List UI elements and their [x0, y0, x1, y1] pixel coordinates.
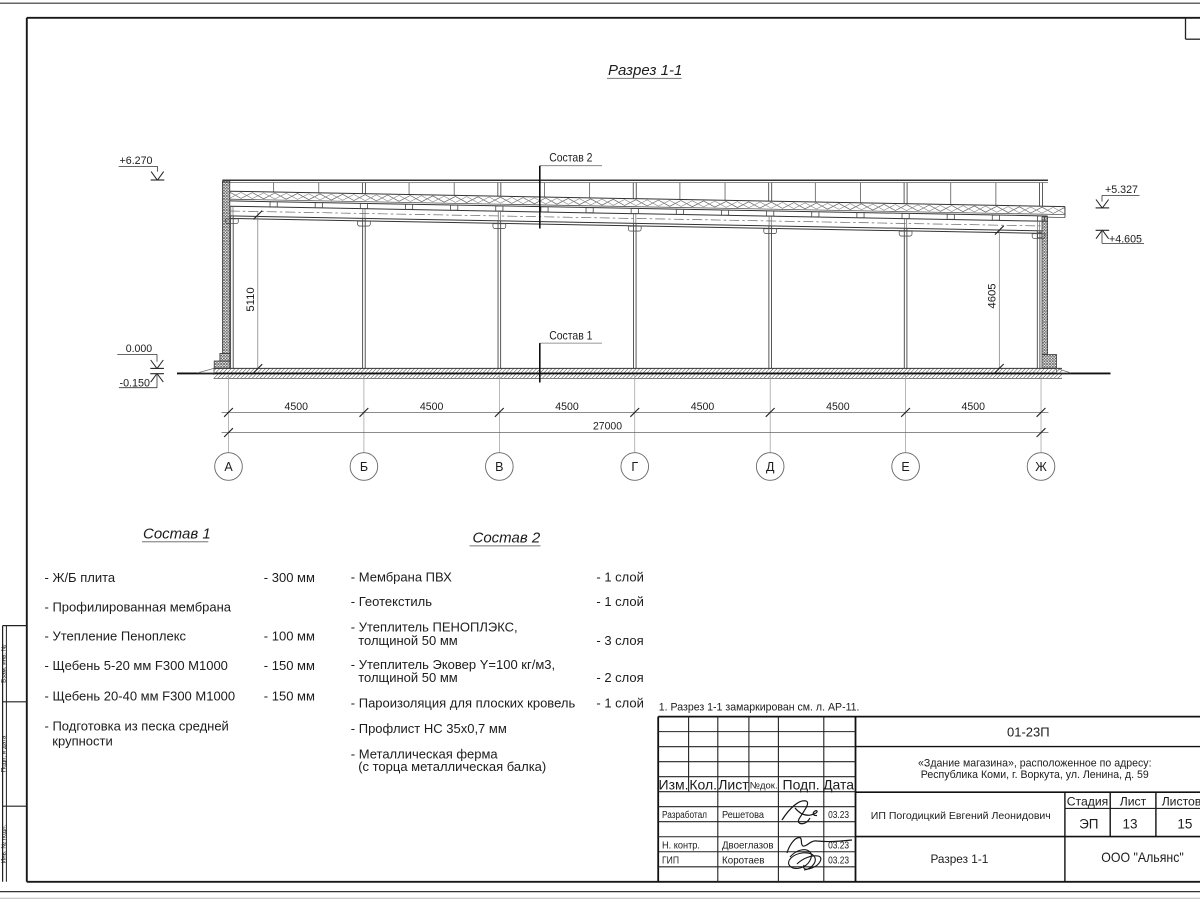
svg-text:- Мембрана ПВХ: - Мембрана ПВХ [351, 570, 452, 585]
svg-text:Состав 1: Состав 1 [549, 329, 592, 342]
svg-text:Двоеглазов: Двоеглазов [722, 840, 774, 852]
svg-text:толщиной 50 мм: толщиной 50 мм [358, 633, 458, 648]
svg-text:Г: Г [631, 460, 638, 474]
svg-text:Состав 2: Состав 2 [473, 530, 541, 547]
svg-text:Изм.: Изм. [659, 776, 689, 792]
svg-text:- Ж/Б плита: - Ж/Б плита [45, 570, 116, 585]
svg-text:- Щебень 20-40 мм F300 М1000: - Щебень 20-40 мм F300 М1000 [45, 689, 236, 704]
svg-text:4500: 4500 [420, 401, 444, 413]
svg-text:5110: 5110 [245, 287, 257, 311]
svg-text:Б: Б [360, 460, 368, 474]
svg-text:ООО "Альянс": ООО "Альянс" [1101, 849, 1184, 865]
svg-text:Дата: Дата [823, 776, 854, 792]
svg-text:- Щебень 5-20 мм F300 М1000: - Щебень 5-20 мм F300 М1000 [45, 658, 228, 673]
svg-text:01-23П: 01-23П [1007, 725, 1050, 740]
svg-text:ЭП: ЭП [1079, 816, 1098, 831]
svg-text:+5.327: +5.327 [1105, 184, 1138, 196]
svg-text:крупности: крупности [52, 734, 112, 749]
svg-text:-0.150: -0.150 [120, 378, 151, 390]
svg-text:Взам. инв. №: Взам. инв. № [0, 644, 7, 683]
svg-text:+4.605: +4.605 [1109, 234, 1142, 246]
svg-text:Листов: Листов [1162, 795, 1200, 809]
svg-text:- 300 мм: - 300 мм [264, 570, 315, 585]
svg-text:№док.: №док. [750, 781, 778, 792]
svg-text:4500: 4500 [962, 401, 986, 413]
svg-text:«Здание магазина», расположенн: «Здание магазина», расположенное по адре… [918, 758, 1152, 770]
svg-text:- 1 слой: - 1 слой [596, 570, 644, 585]
svg-text:Коротаев: Коротаев [722, 855, 765, 867]
svg-text:В: В [495, 460, 503, 474]
svg-text:1. Разрез 1-1 замаркирован см.: 1. Разрез 1-1 замаркирован см. л. АР-11. [659, 702, 860, 714]
svg-text:03.23: 03.23 [828, 856, 849, 867]
svg-text:ИП Погодицкий Евгений Леонидов: ИП Погодицкий Евгений Леонидович [871, 810, 1051, 822]
svg-text:4500: 4500 [284, 401, 308, 413]
svg-text:- 1 слой: - 1 слой [596, 695, 644, 710]
svg-text:- 100 мм: - 100 мм [264, 629, 315, 644]
svg-text:Н. контр.: Н. контр. [662, 841, 700, 852]
svg-text:Стадия: Стадия [1067, 795, 1109, 809]
svg-text:Подп. и дата: Подп. и дата [0, 735, 7, 772]
svg-text:15: 15 [1177, 816, 1192, 831]
svg-text:- Утепление Пеноплекс: - Утепление Пеноплекс [45, 629, 187, 644]
svg-text:- 3 слоя: - 3 слоя [596, 633, 643, 648]
svg-text:Е: Е [901, 460, 909, 474]
svg-text:Инв. № подл.: Инв. № подл. [0, 824, 7, 863]
svg-text:Разработал: Разработал [662, 809, 707, 821]
svg-text:- 150 мм: - 150 мм [264, 658, 315, 673]
svg-text:Лист: Лист [1120, 795, 1147, 809]
svg-text:- Профлист НС 35х0,7 мм: - Профлист НС 35х0,7 мм [351, 721, 507, 736]
svg-text:- 1 слой: - 1 слой [596, 594, 644, 609]
svg-text:4605: 4605 [986, 283, 998, 308]
svg-text:- Пароизоляция для плоских кро: - Пароизоляция для плоских кровель [351, 695, 576, 710]
svg-text:толщиной 50 мм: толщиной 50 мм [358, 670, 458, 685]
svg-text:- 2 слоя: - 2 слоя [596, 670, 643, 685]
svg-text:Подп.: Подп. [783, 776, 820, 792]
svg-text:Разрез 1-1: Разрез 1-1 [608, 62, 682, 79]
svg-text:0.000: 0.000 [126, 343, 153, 355]
svg-text:13: 13 [1122, 816, 1137, 831]
svg-text:+6.270: +6.270 [120, 155, 153, 167]
svg-text:Д: Д [766, 460, 775, 474]
svg-text:4500: 4500 [691, 401, 715, 413]
svg-text:4500: 4500 [555, 401, 579, 413]
svg-text:4500: 4500 [826, 401, 850, 413]
svg-text:03.23: 03.23 [828, 841, 849, 852]
svg-text:ГИП: ГИП [662, 856, 679, 867]
svg-text:- 150 мм: - 150 мм [264, 689, 315, 704]
svg-text:(с торца металлическая балка): (с торца металлическая балка) [358, 759, 546, 774]
svg-text:03.23: 03.23 [828, 810, 849, 821]
svg-text:Республика Коми, г. Воркута, у: Республика Коми, г. Воркута, ул. Ленина,… [921, 769, 1149, 781]
svg-text:Лист: Лист [718, 776, 749, 792]
svg-text:27000: 27000 [593, 421, 622, 433]
svg-text:- Геотекстиль: - Геотекстиль [351, 594, 432, 609]
svg-text:- Подготовка из песка средней: - Подготовка из песка средней [45, 718, 229, 733]
svg-text:- Профилированная мембрана: - Профилированная мембрана [45, 599, 232, 614]
svg-text:Кол.: Кол. [689, 776, 717, 792]
svg-text:Разрез 1-1: Разрез 1-1 [930, 852, 988, 866]
svg-text:Ж: Ж [1035, 460, 1047, 474]
svg-text:А: А [224, 460, 233, 474]
svg-text:Состав 1: Состав 1 [143, 526, 211, 543]
svg-text:Состав 2: Состав 2 [549, 152, 592, 165]
svg-text:Решетова: Решетова [722, 809, 764, 821]
